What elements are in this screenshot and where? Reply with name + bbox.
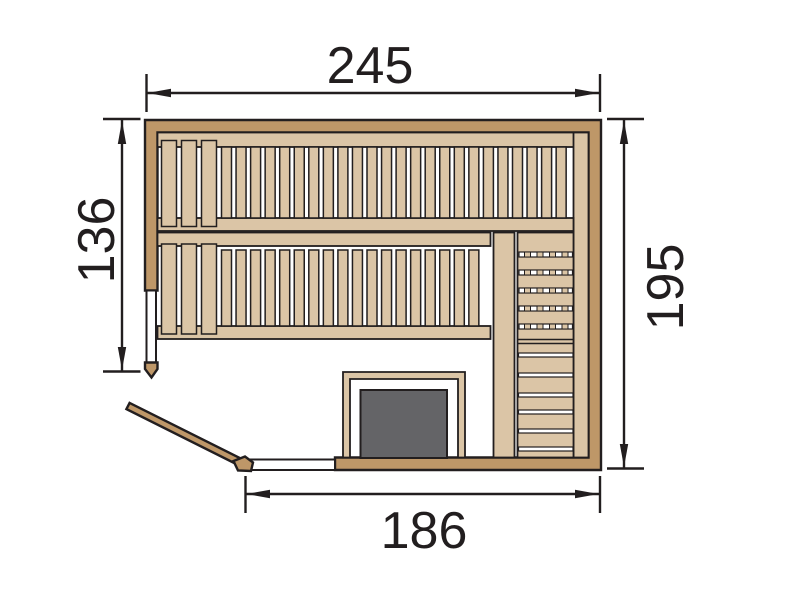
lower-bench-slat — [396, 250, 406, 326]
lower-bench-slat — [440, 250, 450, 326]
upper-bench-slat — [440, 147, 450, 218]
upper-bench-slat — [527, 147, 537, 218]
door-leaf — [126, 403, 243, 466]
lower-bench-wide-slat — [182, 244, 197, 334]
side-bench-gap-dash — [525, 252, 531, 257]
lower-bench-slat — [294, 250, 304, 326]
upper-bench-slat — [396, 147, 406, 218]
side-bench-gap-dash — [525, 324, 531, 329]
left-glass-panel — [147, 291, 157, 363]
right-wall-inner-strip — [574, 133, 589, 458]
upper-bench-slat — [323, 147, 333, 218]
upper-bench-slat — [367, 147, 377, 218]
dimension-left: 136 — [68, 119, 141, 372]
upper-bench — [158, 141, 574, 232]
dim-top-arrow-right — [575, 89, 599, 97]
dim-right-arrow-down — [620, 444, 628, 467]
upper-bench-wide-slat — [182, 141, 197, 227]
upper-bench-wide-slat — [202, 141, 217, 227]
dimension-right-label: 195 — [637, 244, 695, 331]
upper-bench-front-rail — [158, 218, 574, 231]
upper-bench-slat — [513, 147, 523, 218]
top-wall-inner-strip — [158, 133, 589, 148]
lower-bench-slats — [162, 244, 479, 334]
side-bench-gap-dash — [537, 270, 543, 275]
upper-bench-slat — [425, 147, 435, 218]
side-bench-base — [518, 233, 574, 458]
heater-area — [343, 372, 465, 458]
side-bench-gap-dash — [537, 252, 543, 257]
side-bench-divider — [494, 233, 515, 458]
dimension-top: 245 — [147, 37, 601, 112]
side-bench-gap-dash — [550, 252, 556, 257]
floor-plan-svg: 245 136 195 186 — [0, 0, 800, 600]
dim-bottom-arrow-right — [575, 490, 599, 498]
lower-bench-slat — [352, 250, 362, 326]
side-bench-plank-gap-row — [519, 373, 574, 377]
dimension-bottom: 186 — [246, 476, 601, 560]
upper-bench-slat — [236, 147, 246, 218]
dim-left-arrow-down — [118, 347, 126, 370]
side-bench-gap-dash — [525, 270, 531, 275]
upper-bench-slat — [294, 147, 304, 218]
side-bench-gap-dash — [537, 324, 543, 329]
dim-bottom-arrow-left — [247, 490, 271, 498]
left-corner-post — [145, 363, 158, 378]
upper-bench-slat — [222, 147, 232, 218]
upper-bench-slat — [382, 147, 392, 218]
upper-bench-slat — [280, 147, 290, 218]
side-bench-gap-dash — [562, 324, 568, 329]
dimension-top-label: 245 — [327, 37, 414, 95]
lower-bench-slat — [323, 250, 333, 326]
bottom-glass-panel — [249, 460, 336, 471]
lower-bench-slat — [222, 250, 232, 326]
upper-bench-slat — [556, 147, 566, 218]
lower-bench-slat — [382, 250, 392, 326]
dimension-left-label: 136 — [68, 197, 126, 284]
upper-bench-slat — [352, 147, 362, 218]
lower-bench — [158, 233, 491, 340]
lower-bench-slat — [309, 250, 319, 326]
side-bench-gap-dash — [562, 288, 568, 293]
side-bench-gap-dash — [550, 324, 556, 329]
lower-bench-slat — [469, 250, 479, 326]
side-bench-gap-dash — [525, 288, 531, 293]
side-bench-plank-gap-row — [519, 447, 574, 451]
side-bench-gap-dash — [550, 270, 556, 275]
upper-bench-slat — [498, 147, 508, 218]
lower-bench-slat — [251, 250, 261, 326]
upper-bench-wide-slat — [162, 141, 177, 227]
side-bench-gap-dash — [550, 306, 556, 311]
heater-stove — [361, 390, 448, 458]
dimension-right: 195 — [607, 119, 695, 469]
lower-bench-slat — [367, 250, 377, 326]
lower-bench-slat — [411, 250, 421, 326]
dim-top-arrow-left — [148, 89, 172, 97]
upper-bench-slats — [162, 141, 567, 227]
upper-bench-slat — [338, 147, 348, 218]
upper-bench-slat — [469, 147, 479, 218]
upper-bench-slat — [542, 147, 552, 218]
lower-bench-slat — [425, 250, 435, 326]
upper-bench-slat — [309, 147, 319, 218]
side-bench-plank-gap-row — [519, 410, 574, 414]
side-bench-gap-dash — [562, 252, 568, 257]
lower-bench-slat — [280, 250, 290, 326]
side-bench-gap-dash — [562, 306, 568, 311]
upper-bench-slat — [483, 147, 493, 218]
side-bench-gap-dash — [525, 306, 531, 311]
upper-bench-slat — [265, 147, 275, 218]
door-open — [126, 403, 253, 471]
sauna-floor-plan-diagram: 245 136 195 186 — [0, 0, 800, 600]
lower-bench-slat — [265, 250, 275, 326]
upper-bench-slat — [411, 147, 421, 218]
dimension-bottom-label: 186 — [381, 502, 468, 560]
dim-left-arrow-up — [118, 121, 126, 145]
side-bench-gap-dash — [537, 306, 543, 311]
side-bench — [494, 233, 574, 458]
side-bench-gap-dash — [550, 288, 556, 293]
side-bench-plank-gap-row — [519, 393, 574, 397]
lower-bench-wide-slat — [162, 244, 177, 334]
side-bench-plank-gap-row — [519, 429, 574, 433]
lower-bench-slat — [338, 250, 348, 326]
lower-bench-slat — [236, 250, 246, 326]
upper-bench-slat — [454, 147, 464, 218]
lower-bench-slat — [454, 250, 464, 326]
lower-bench-wide-slat — [202, 244, 217, 334]
upper-bench-slat — [251, 147, 261, 218]
dim-right-arrow-up — [620, 121, 628, 145]
side-bench-gap-dash — [537, 288, 543, 293]
side-bench-plank-gap-row — [519, 353, 574, 357]
side-bench-gap-dash — [562, 270, 568, 275]
